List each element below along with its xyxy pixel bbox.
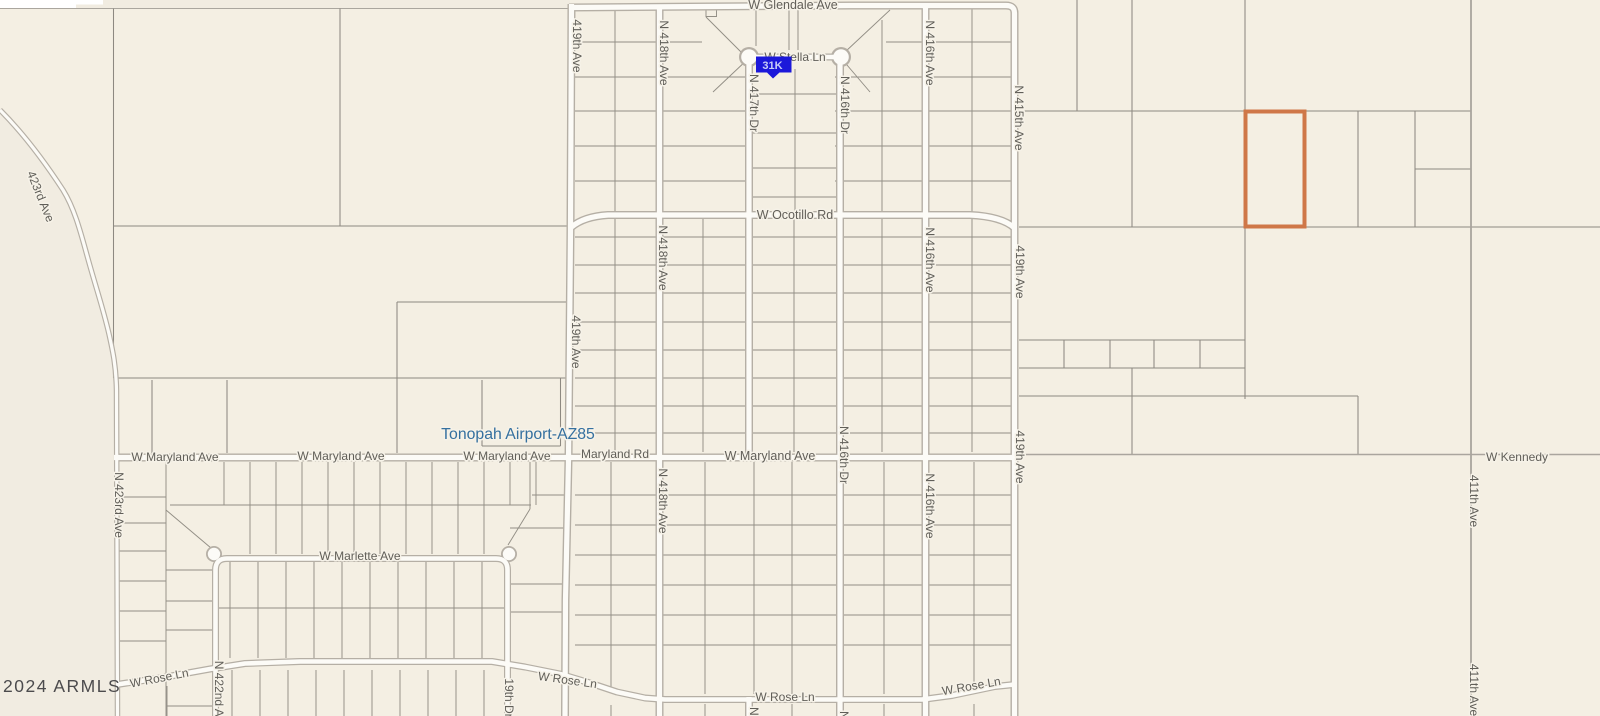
svg-text:N 416th Dr: N 416th Dr bbox=[837, 426, 851, 484]
svg-text:N 418th Ave: N 418th Ave bbox=[657, 20, 671, 85]
svg-text:N 415th Ave: N 415th Ave bbox=[1012, 85, 1026, 150]
svg-text:W Maryland Ave: W Maryland Ave bbox=[297, 449, 384, 463]
svg-text:N 418th Ave: N 418th Ave bbox=[656, 468, 670, 533]
svg-text:N 416th Dr: N 416th Dr bbox=[837, 711, 851, 716]
svg-text:Tonopah Airport-AZ85: Tonopah Airport-AZ85 bbox=[441, 426, 595, 443]
svg-text:N 416th Ave: N 416th Ave bbox=[923, 20, 937, 85]
svg-text:N 416th Ave: N 416th Ave bbox=[923, 473, 937, 538]
svg-text:N 418th Ave: N 418th Ave bbox=[656, 225, 670, 290]
svg-text:N 422nd Ave: N 422nd Ave bbox=[212, 661, 226, 716]
svg-text:N 417th Dr: N 417th Dr bbox=[747, 74, 761, 132]
svg-text:W Marlette Ave: W Marlette Ave bbox=[319, 549, 400, 563]
svg-text:W Kennedy: W Kennedy bbox=[1486, 450, 1548, 464]
svg-text:2024 ARMLS: 2024 ARMLS bbox=[3, 676, 121, 696]
svg-text:N 416th Ave: N 416th Ave bbox=[923, 227, 937, 292]
svg-text:411th Ave: 411th Ave bbox=[1467, 475, 1481, 528]
svg-text:W Rose Ln: W Rose Ln bbox=[755, 690, 814, 704]
svg-text:W Glendale Ave: W Glendale Ave bbox=[748, 0, 837, 12]
svg-text:419th Ave: 419th Ave bbox=[569, 315, 583, 368]
svg-text:W Ocotillo Rd: W Ocotillo Rd bbox=[757, 208, 833, 222]
svg-text:W Maryland Ave: W Maryland Ave bbox=[725, 449, 816, 463]
svg-text:N 417th Dr: N 417th Dr bbox=[747, 707, 761, 716]
svg-text:419th Ave: 419th Ave bbox=[570, 19, 584, 72]
svg-text:31K: 31K bbox=[762, 60, 782, 72]
svg-text:419th Ave: 419th Ave bbox=[1013, 245, 1027, 298]
svg-text:419th Ave: 419th Ave bbox=[1013, 430, 1027, 483]
svg-text:N 416th Dr: N 416th Dr bbox=[838, 76, 852, 134]
svg-text:W Maryland Ave: W Maryland Ave bbox=[131, 450, 218, 464]
svg-text:N 423rd Ave: N 423rd Ave bbox=[112, 472, 126, 538]
svg-text:Maryland Rd: Maryland Rd bbox=[581, 447, 649, 461]
svg-text:19th Dr: 19th Dr bbox=[502, 678, 516, 716]
svg-text:W Maryland Ave: W Maryland Ave bbox=[463, 449, 550, 463]
svg-text:411th Ave: 411th Ave bbox=[1467, 664, 1481, 716]
